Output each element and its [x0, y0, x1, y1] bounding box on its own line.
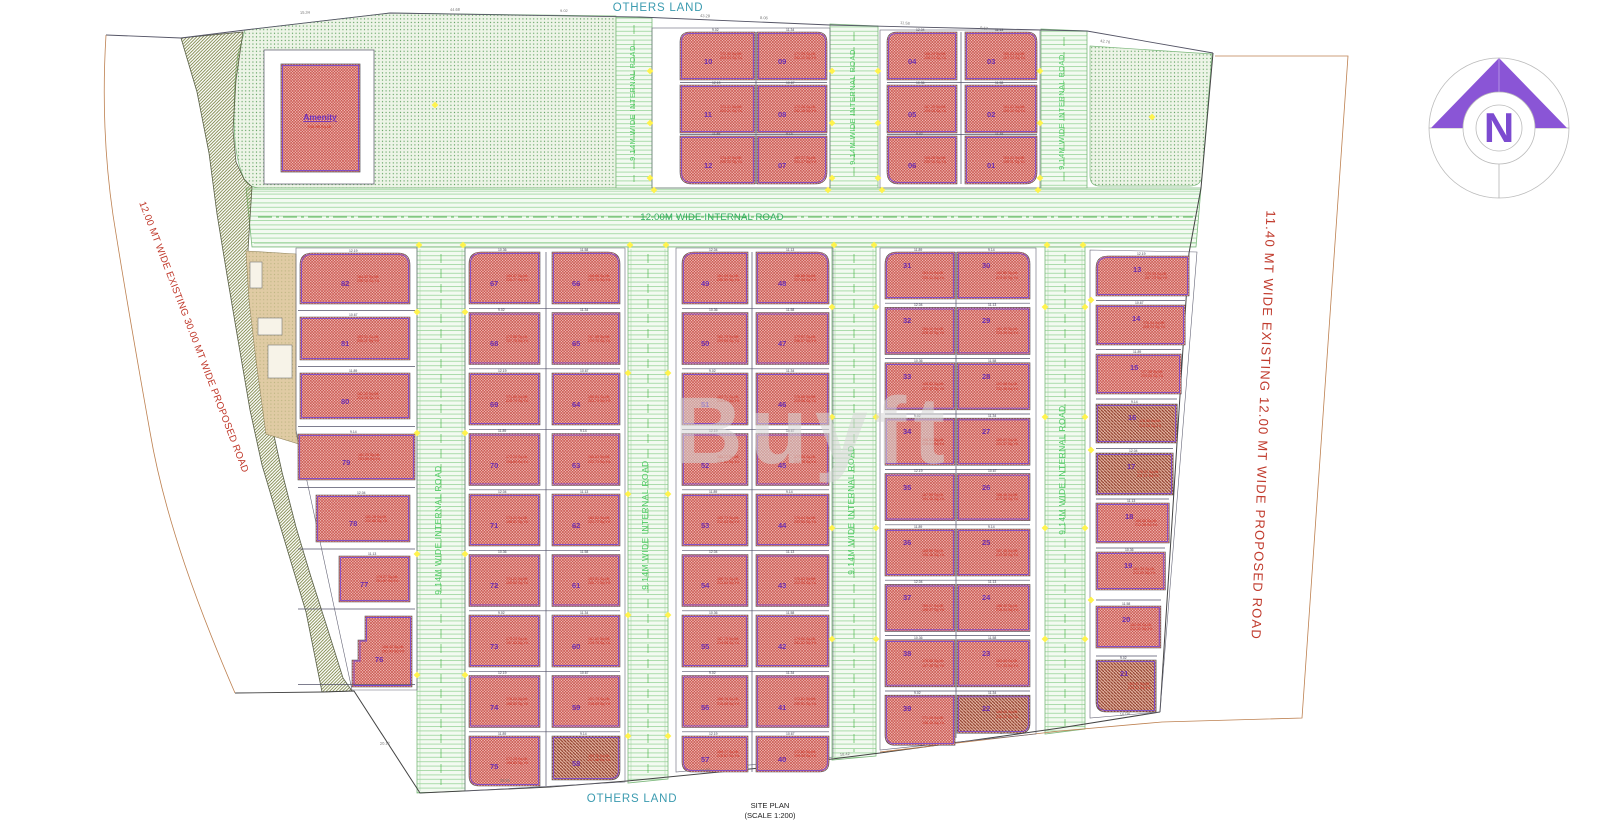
svg-text:11.40 MT WIDE EXISTING 12.00 M: 11.40 MT WIDE EXISTING 12.00 MT WIDE PRO… — [1249, 210, 1279, 640]
svg-text:194.45 Sq.Yd.: 194.45 Sq.Yd. — [922, 497, 945, 501]
svg-text:12.04: 12.04 — [914, 580, 923, 584]
svg-text:198.49 Sq.Yd.: 198.49 Sq.Yd. — [922, 721, 945, 725]
svg-text:205.11 Sq.Yd.: 205.11 Sq.Yd. — [357, 339, 380, 343]
svg-text:11.13: 11.13 — [368, 552, 376, 556]
svg-text:OTHERS LAND: OTHERS LAND — [613, 2, 704, 14]
svg-text:9.14M WIDE INTERNAL ROAD: 9.14M WIDE INTERNAL ROAD — [1057, 405, 1067, 534]
svg-text:07: 07 — [778, 161, 786, 170]
svg-text:198.84 Sq.Yd.: 198.84 Sq.Yd. — [506, 702, 529, 706]
svg-text:22.16: 22.16 — [1000, 729, 1011, 735]
svg-text:24: 24 — [982, 593, 991, 602]
svg-text:199.50 Sq.Yd.: 199.50 Sq.Yd. — [794, 754, 817, 758]
svg-text:44: 44 — [778, 521, 787, 530]
svg-text:11.13: 11.13 — [1127, 499, 1135, 503]
svg-text:20.12: 20.12 — [380, 740, 391, 746]
svg-text:60: 60 — [572, 642, 580, 651]
svg-text:06: 06 — [908, 161, 916, 170]
svg-text:41: 41 — [778, 703, 786, 712]
svg-text:208.59 Sq.Yd.: 208.59 Sq.Yd. — [717, 278, 740, 282]
svg-text:185.43 Sq.Mt.: 185.43 Sq.Mt. — [996, 659, 1018, 663]
svg-text:172.20 Sq.Mt.: 172.20 Sq.Mt. — [506, 455, 528, 459]
svg-text:63: 63 — [572, 461, 580, 470]
svg-text:12.04: 12.04 — [916, 28, 925, 32]
svg-text:73: 73 — [490, 642, 498, 651]
svg-text:190.48 Sq.Mt.: 190.48 Sq.Mt. — [996, 382, 1018, 386]
svg-text:11.89: 11.89 — [349, 369, 357, 373]
svg-text:74: 74 — [490, 703, 499, 712]
svg-text:64: 64 — [572, 400, 581, 409]
svg-text:12: 12 — [704, 161, 712, 170]
svg-text:205.21 Sq.Yd.: 205.21 Sq.Yd. — [720, 109, 743, 113]
svg-text:216.67 Sq.Yd.: 216.67 Sq.Yd. — [717, 754, 740, 758]
svg-text:11.13: 11.13 — [988, 580, 996, 584]
svg-text:196.47 Sq.Yd.: 196.47 Sq.Yd. — [922, 608, 945, 612]
svg-text:11: 11 — [704, 110, 712, 119]
svg-text:10.36: 10.36 — [914, 359, 923, 363]
svg-text:9.14M WIDE INTERNAL ROAD: 9.14M WIDE INTERNAL ROAD — [628, 45, 637, 161]
svg-text:225.76 Sq.Yd.: 225.76 Sq.Yd. — [588, 278, 611, 282]
svg-text:203.54 Sq.Yd.: 203.54 Sq.Yd. — [794, 520, 817, 524]
svg-text:9.67: 9.67 — [980, 25, 989, 31]
svg-text:10.67: 10.67 — [580, 369, 589, 373]
svg-text:11.13: 11.13 — [988, 303, 996, 307]
svg-text:9.02: 9.02 — [914, 691, 921, 695]
svg-text:49: 49 — [701, 279, 709, 288]
svg-text:215.31 Sq.Yd.: 215.31 Sq.Yd. — [1128, 686, 1151, 690]
svg-text:9.14: 9.14 — [786, 490, 793, 494]
svg-text:209.25 Sq.Yd.: 209.25 Sq.Yd. — [1141, 374, 1164, 378]
svg-text:9.02: 9.02 — [709, 369, 716, 373]
svg-text:10: 10 — [704, 57, 712, 66]
svg-text:225.41 Sq.Yd.: 225.41 Sq.Yd. — [922, 276, 945, 280]
svg-text:221.72 Sq.Yd.: 221.72 Sq.Yd. — [588, 520, 611, 524]
svg-text:23: 23 — [982, 649, 990, 658]
svg-text:11.58: 11.58 — [1122, 602, 1130, 606]
svg-text:224.75 Sq.Yd.: 224.75 Sq.Yd. — [588, 339, 611, 343]
svg-text:221.37 Sq.Yd.: 221.37 Sq.Yd. — [996, 442, 1019, 446]
svg-text:191.79 Sq.Mt.: 191.79 Sq.Mt. — [588, 697, 610, 701]
svg-text:9.14: 9.14 — [580, 732, 587, 736]
svg-text:946.96 Sq.Mt.: 946.96 Sq.Mt. — [308, 124, 333, 129]
svg-text:162.50 Sq.Mt.: 162.50 Sq.Mt. — [996, 271, 1018, 275]
svg-text:12.04: 12.04 — [914, 303, 923, 307]
svg-text:208.24 Sq.Yd.: 208.24 Sq.Yd. — [1143, 325, 1166, 329]
svg-text:11.89: 11.89 — [709, 490, 717, 494]
svg-text:Amenity: Amenity — [303, 112, 337, 122]
svg-text:71: 71 — [490, 521, 498, 530]
svg-text:207.23 Sq.Yd.: 207.23 Sq.Yd. — [1145, 276, 1168, 280]
svg-text:11.13: 11.13 — [580, 490, 588, 494]
svg-text:38: 38 — [903, 649, 911, 658]
svg-text:9.14: 9.14 — [988, 248, 995, 252]
svg-text:227.78 Sq.Yd.: 227.78 Sq.Yd. — [506, 339, 529, 343]
svg-text:11.58: 11.58 — [995, 81, 1003, 85]
svg-text:15: 15 — [1130, 363, 1138, 372]
svg-text:9.14: 9.14 — [786, 132, 793, 136]
svg-text:163.51 Sq.Mt.: 163.51 Sq.Mt. — [922, 271, 944, 275]
svg-text:220.71 Sq.Yd.: 220.71 Sq.Yd. — [588, 581, 611, 585]
svg-text:196.82 Sq.Yd.: 196.82 Sq.Yd. — [506, 581, 529, 585]
svg-text:57: 57 — [701, 755, 709, 764]
svg-text:55: 55 — [701, 642, 709, 651]
svg-text:202.18 Sq.Yd.: 202.18 Sq.Yd. — [794, 109, 817, 113]
svg-text:11.89: 11.89 — [914, 248, 922, 252]
svg-text:12.19: 12.19 — [709, 732, 718, 736]
svg-text:11.89: 11.89 — [498, 732, 506, 736]
svg-text:42: 42 — [778, 642, 786, 651]
svg-text:N: N — [1484, 104, 1514, 151]
svg-text:173.61 Sq.Mt.: 173.61 Sq.Mt. — [794, 697, 816, 701]
svg-text:9.14: 9.14 — [988, 525, 995, 529]
svg-text:10.36: 10.36 — [498, 248, 507, 252]
svg-text:199.85 Sq.Yd.: 199.85 Sq.Yd. — [506, 761, 529, 765]
svg-text:165.83 Sq.Mt.: 165.83 Sq.Mt. — [588, 455, 610, 459]
svg-text:77: 77 — [360, 580, 368, 589]
svg-text:21: 21 — [1120, 669, 1128, 678]
svg-text:12.04: 12.04 — [357, 491, 366, 495]
svg-text:53: 53 — [701, 521, 709, 530]
svg-text:201.17 Sq.Yd.: 201.17 Sq.Yd. — [794, 160, 817, 164]
svg-text:198.14 Sq.Yd.: 198.14 Sq.Yd. — [924, 56, 947, 60]
svg-text:50: 50 — [701, 339, 709, 348]
svg-text:207.58 Sq.Yd.: 207.58 Sq.Yd. — [794, 278, 817, 282]
svg-text:9.14M WIDE INTERNAL ROAD: 9.14M WIDE INTERNAL ROAD — [1057, 54, 1066, 170]
svg-text:70: 70 — [490, 461, 498, 470]
svg-text:80: 80 — [341, 397, 349, 406]
svg-text:08: 08 — [778, 110, 786, 119]
svg-text:197.48 Sq.Yd.: 197.48 Sq.Yd. — [922, 664, 945, 668]
svg-text:29: 29 — [982, 316, 990, 325]
svg-text:200.16 Sq.Yd.: 200.16 Sq.Yd. — [924, 160, 947, 164]
svg-text:11.34: 11.34 — [988, 414, 996, 418]
svg-text:09: 09 — [778, 57, 786, 66]
svg-text:25: 25 — [982, 538, 990, 547]
svg-text:217.33 Sq.Yd.: 217.33 Sq.Yd. — [996, 664, 1019, 668]
svg-text:218.69 Sq.Yd.: 218.69 Sq.Yd. — [588, 702, 611, 706]
svg-text:222.38 Sq.Yd.: 222.38 Sq.Yd. — [996, 387, 1019, 391]
svg-text:12.19: 12.19 — [712, 81, 721, 85]
svg-text:SITE PLAN: SITE PLAN — [751, 801, 790, 810]
svg-text:201.43 Sq.Yd.: 201.43 Sq.Yd. — [382, 649, 405, 653]
svg-text:05: 05 — [908, 110, 916, 119]
svg-text:65: 65 — [572, 339, 580, 348]
svg-text:204.10 Sq.Yd.: 204.10 Sq.Yd. — [357, 396, 380, 400]
svg-text:204.20 Sq.Yd.: 204.20 Sq.Yd. — [720, 56, 743, 60]
svg-text:212.63 Sq.Yd.: 212.63 Sq.Yd. — [717, 520, 740, 524]
svg-text:223.74 Sq.Yd.: 223.74 Sq.Yd. — [588, 399, 611, 403]
svg-text:194.80 Sq.Yd.: 194.80 Sq.Yd. — [506, 460, 529, 464]
svg-text:168.42 Sq.Mt.: 168.42 Sq.Mt. — [382, 645, 404, 649]
svg-text:228.79 Sq.Yd.: 228.79 Sq.Yd. — [506, 399, 529, 403]
svg-text:214.30 Sq.Yd.: 214.30 Sq.Yd. — [1130, 627, 1153, 631]
svg-text:11.58: 11.58 — [786, 611, 794, 615]
svg-text:9.02: 9.02 — [712, 28, 719, 32]
svg-text:11.13: 11.13 — [995, 28, 1003, 32]
svg-text:28.55: 28.55 — [500, 778, 511, 783]
svg-text:39: 39 — [903, 704, 911, 713]
svg-text:11.34: 11.34 — [988, 691, 996, 695]
svg-text:213.64 Sq.Yd.: 213.64 Sq.Yd. — [717, 581, 740, 585]
svg-text:58: 58 — [572, 759, 580, 768]
svg-text:10.36: 10.36 — [709, 611, 718, 615]
svg-text:16.08: 16.08 — [1119, 711, 1130, 717]
svg-text:24.30: 24.30 — [700, 767, 711, 773]
svg-text:28: 28 — [982, 372, 990, 381]
svg-text:31: 31 — [903, 261, 911, 270]
svg-text:44.68: 44.68 — [450, 7, 461, 12]
svg-text:61: 61 — [572, 581, 580, 590]
svg-text:196.12 Sq.Yd.: 196.12 Sq.Yd. — [1003, 109, 1026, 113]
svg-text:66: 66 — [572, 279, 580, 288]
svg-text:224.40 Sq.Yd.: 224.40 Sq.Yd. — [996, 276, 1019, 280]
svg-text:203.89 Sq.Yd.: 203.89 Sq.Yd. — [358, 457, 381, 461]
svg-text:32: 32 — [903, 316, 911, 325]
svg-text:14: 14 — [1132, 314, 1141, 323]
svg-text:10.67: 10.67 — [1135, 301, 1144, 305]
svg-text:62: 62 — [572, 521, 580, 530]
svg-text:79: 79 — [342, 458, 350, 467]
svg-text:219.35 Sq.Yd.: 219.35 Sq.Yd. — [996, 553, 1019, 557]
svg-text:17: 17 — [1127, 462, 1135, 471]
svg-text:12.04: 12.04 — [498, 490, 507, 494]
svg-text:Buyft: Buyft — [674, 378, 952, 484]
svg-text:82: 82 — [341, 279, 349, 288]
svg-text:42.76: 42.76 — [1100, 38, 1111, 45]
svg-text:200.51 Sq.Yd.: 200.51 Sq.Yd. — [794, 702, 817, 706]
svg-text:219.70 Sq.Yd.: 219.70 Sq.Yd. — [588, 641, 611, 645]
svg-text:170.58 Sq.Mt.: 170.58 Sq.Mt. — [922, 659, 944, 663]
svg-text:47: 47 — [778, 339, 786, 348]
svg-text:22: 22 — [982, 704, 990, 713]
svg-text:11.89: 11.89 — [914, 525, 922, 529]
svg-text:195.11 Sq.Yd.: 195.11 Sq.Yd. — [1003, 160, 1026, 164]
svg-text:216.32 Sq.Yd.: 216.32 Sq.Yd. — [996, 715, 1019, 719]
svg-text:40: 40 — [778, 755, 786, 764]
svg-text:9.14: 9.14 — [350, 430, 357, 434]
svg-text:10.36: 10.36 — [914, 636, 923, 640]
svg-text:199.15 Sq.Yd.: 199.15 Sq.Yd. — [924, 109, 947, 113]
svg-text:201.52 Sq.Yd.: 201.52 Sq.Yd. — [794, 641, 817, 645]
svg-text:11.89: 11.89 — [712, 132, 720, 136]
svg-text:11.89: 11.89 — [1133, 350, 1141, 354]
svg-text:10.67: 10.67 — [349, 313, 358, 317]
svg-text:206.12 Sq.Yd.: 206.12 Sq.Yd. — [357, 279, 380, 283]
svg-text:48: 48 — [778, 279, 786, 288]
svg-text:11.58: 11.58 — [900, 20, 911, 26]
svg-text:(SCALE 1:200): (SCALE 1:200) — [744, 811, 796, 820]
svg-text:9.14M WIDE INTERNAL ROAD: 9.14M WIDE INTERNAL ROAD — [433, 465, 443, 594]
svg-text:56: 56 — [701, 703, 709, 712]
svg-text:OTHERS LAND: OTHERS LAND — [587, 793, 678, 805]
svg-text:78: 78 — [349, 519, 357, 528]
svg-text:9.14M WIDE INTERNAL ROAD: 9.14M WIDE INTERNAL ROAD — [848, 49, 857, 165]
svg-text:43: 43 — [778, 581, 786, 590]
svg-text:10.67: 10.67 — [786, 732, 795, 736]
svg-text:54: 54 — [701, 581, 710, 590]
svg-text:11.13: 11.13 — [786, 248, 794, 252]
svg-text:12.04: 12.04 — [1129, 449, 1138, 453]
svg-text:171.59 Sq.Mt.: 171.59 Sq.Mt. — [922, 716, 944, 720]
svg-text:223.39 Sq.Yd.: 223.39 Sq.Yd. — [996, 331, 1019, 335]
svg-text:18: 18 — [1125, 512, 1133, 521]
svg-text:11.58: 11.58 — [580, 248, 588, 252]
svg-text:178.36 Sq.Mt.: 178.36 Sq.Mt. — [1139, 419, 1161, 423]
svg-text:12.19: 12.19 — [1137, 252, 1146, 256]
svg-text:11.34: 11.34 — [995, 132, 1003, 136]
svg-text:197.83 Sq.Yd.: 197.83 Sq.Yd. — [506, 641, 529, 645]
svg-text:69: 69 — [490, 400, 498, 409]
svg-text:202.88 Sq.Yd.: 202.88 Sq.Yd. — [365, 519, 388, 523]
svg-text:72: 72 — [490, 581, 498, 590]
svg-text:8.06: 8.06 — [760, 15, 769, 20]
svg-text:81: 81 — [341, 339, 349, 348]
svg-text:03: 03 — [987, 57, 995, 66]
svg-text:12.04: 12.04 — [709, 248, 718, 252]
svg-text:9.02: 9.02 — [498, 611, 505, 615]
svg-text:176.24 Sq.Mt.: 176.24 Sq.Mt. — [506, 697, 528, 701]
svg-text:226.42 Sq.Yd.: 226.42 Sq.Yd. — [922, 331, 945, 335]
svg-text:27: 27 — [982, 427, 990, 436]
svg-text:211.27 Sq.Yd.: 211.27 Sq.Yd. — [1137, 474, 1160, 478]
svg-text:9.02: 9.02 — [916, 132, 923, 136]
svg-text:184.42 Sq.Mt.: 184.42 Sq.Mt. — [996, 710, 1018, 714]
svg-text:213.29 Sq.Yd.: 213.29 Sq.Yd. — [1133, 571, 1156, 575]
svg-text:218.34 Sq.Yd.: 218.34 Sq.Yd. — [996, 608, 1019, 612]
svg-text:188.76 Sq.Mt.: 188.76 Sq.Mt. — [717, 697, 739, 701]
svg-text:217.68 Sq.Yd.: 217.68 Sq.Yd. — [588, 758, 611, 762]
svg-text:37: 37 — [903, 593, 911, 602]
svg-text:197.13 Sq.Yd.: 197.13 Sq.Yd. — [1003, 56, 1026, 60]
svg-text:9.14M WIDE INTERNAL ROAD: 9.14M WIDE INTERNAL ROAD — [640, 460, 650, 589]
svg-text:13: 13 — [1133, 265, 1141, 274]
svg-text:67: 67 — [490, 279, 498, 288]
svg-text:195.46 Sq.Yd.: 195.46 Sq.Yd. — [922, 553, 945, 557]
svg-text:01: 01 — [987, 161, 995, 170]
svg-text:30: 30 — [982, 261, 990, 270]
svg-text:12.19: 12.19 — [349, 249, 358, 253]
svg-text:226.77 Sq.Yd.: 226.77 Sq.Yd. — [506, 278, 529, 282]
svg-text:206.57 Sq.Yd.: 206.57 Sq.Yd. — [794, 339, 817, 343]
svg-text:9.02: 9.02 — [1120, 656, 1127, 660]
svg-text:203.19 Sq.Yd.: 203.19 Sq.Yd. — [794, 56, 817, 60]
svg-text:36: 36 — [903, 538, 911, 547]
svg-text:19: 19 — [1124, 561, 1132, 570]
svg-text:212.28 Sq.Yd.: 212.28 Sq.Yd. — [1135, 523, 1158, 527]
svg-text:220.36 Sq.Yd.: 220.36 Sq.Yd. — [996, 497, 1019, 501]
svg-text:12.19: 12.19 — [498, 369, 507, 373]
svg-text:222.73 Sq.Yd.: 222.73 Sq.Yd. — [588, 460, 611, 464]
svg-text:26: 26 — [982, 483, 990, 492]
svg-text:210.26 Sq.Yd.: 210.26 Sq.Yd. — [1139, 424, 1162, 428]
svg-text:10.67: 10.67 — [786, 81, 795, 85]
svg-text:10.36: 10.36 — [1125, 548, 1134, 552]
svg-text:43.29: 43.29 — [700, 13, 711, 18]
svg-text:16: 16 — [1128, 413, 1136, 422]
svg-text:11.34: 11.34 — [786, 369, 794, 373]
svg-text:11.58: 11.58 — [988, 359, 996, 363]
svg-text:12.00M WIDE INTERNAL ROAD: 12.00M WIDE INTERNAL ROAD — [640, 212, 783, 223]
svg-text:68: 68 — [490, 339, 498, 348]
svg-text:11.34: 11.34 — [580, 611, 588, 615]
svg-text:202.53 Sq.Yd.: 202.53 Sq.Yd. — [794, 581, 817, 585]
svg-text:201.87 Sq.Yd.: 201.87 Sq.Yd. — [376, 579, 399, 583]
svg-text:75: 75 — [490, 762, 498, 771]
svg-text:35: 35 — [903, 483, 911, 492]
svg-text:9.14: 9.14 — [1131, 400, 1138, 404]
svg-text:15.34: 15.34 — [300, 10, 311, 15]
svg-text:10.36: 10.36 — [916, 81, 925, 85]
svg-text:59: 59 — [572, 703, 580, 712]
svg-text:02: 02 — [987, 110, 995, 119]
svg-text:195.81 Sq.Yd.: 195.81 Sq.Yd. — [506, 520, 529, 524]
svg-text:11.58: 11.58 — [988, 636, 996, 640]
svg-text:214.65 Sq.Yd.: 214.65 Sq.Yd. — [717, 641, 740, 645]
svg-text:215.66 Sq.Yd.: 215.66 Sq.Yd. — [717, 702, 740, 706]
svg-text:04: 04 — [908, 57, 917, 66]
svg-text:11.34: 11.34 — [786, 28, 794, 32]
svg-text:206.22 Sq.Yd.: 206.22 Sq.Yd. — [720, 160, 743, 164]
svg-text:209.60 Sq.Yd.: 209.60 Sq.Yd. — [717, 339, 740, 343]
svg-text:76: 76 — [375, 655, 383, 664]
svg-text:9.02: 9.02 — [560, 8, 569, 13]
